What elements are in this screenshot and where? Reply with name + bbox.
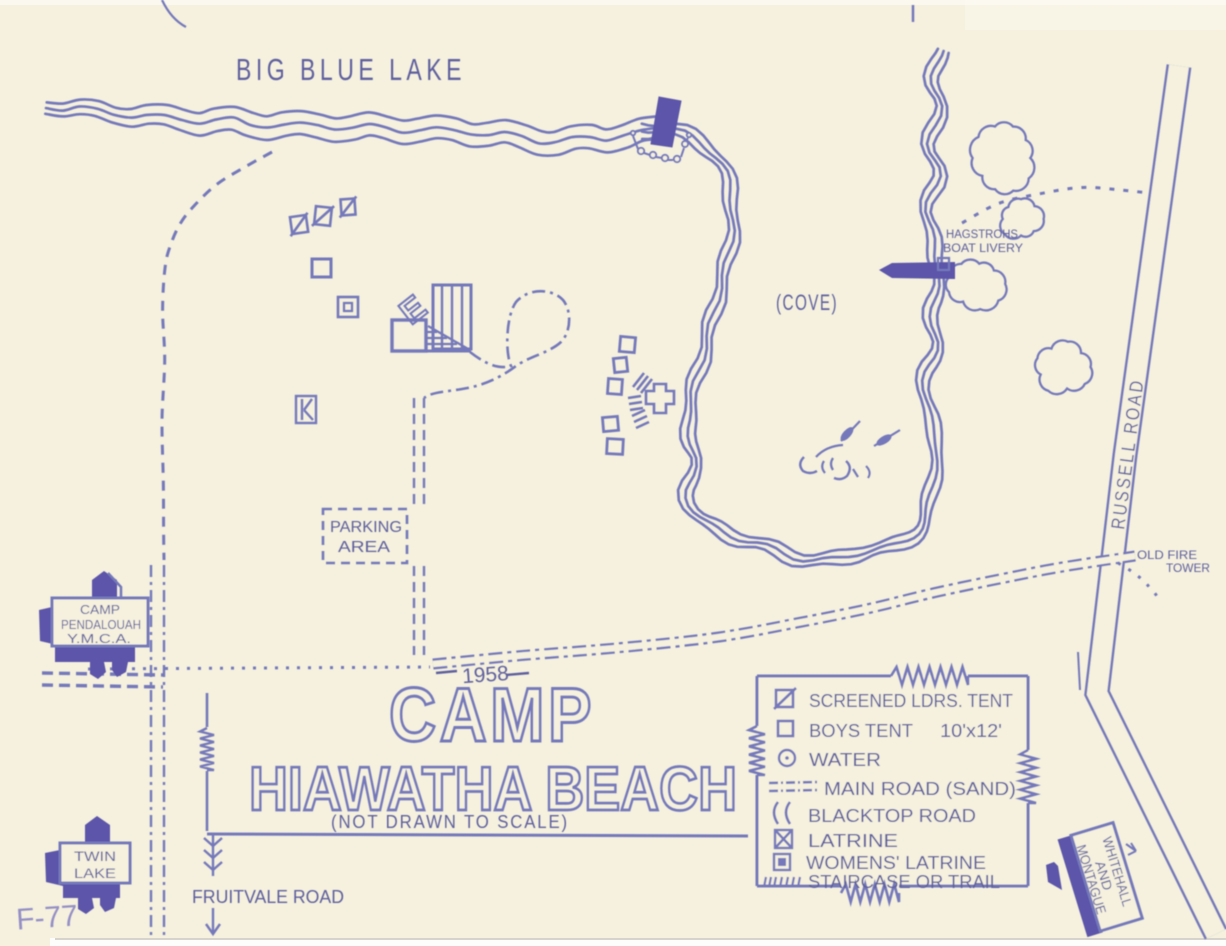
svg-text:TOWER: TOWER xyxy=(1166,561,1210,575)
svg-text:CAMP: CAMP xyxy=(80,602,120,617)
svg-text:F-77: F-77 xyxy=(15,899,79,936)
svg-text:MAIN ROAD (SAND): MAIN ROAD (SAND) xyxy=(824,779,1016,799)
svg-text:SCREENED LDRS. TENT: SCREENED LDRS. TENT xyxy=(809,691,1013,711)
svg-text:STAIRCASE OR TRAIL: STAIRCASE OR TRAIL xyxy=(808,872,1000,892)
svg-text:BLACKTOP ROAD: BLACKTOP ROAD xyxy=(808,806,976,826)
svg-text:HAGSTROHS: HAGSTROHS xyxy=(946,229,1018,241)
svg-text:10'x12': 10'x12' xyxy=(940,721,1002,741)
svg-text:PARKING: PARKING xyxy=(330,519,402,536)
svg-text:CAMP: CAMP xyxy=(389,673,595,758)
svg-text:(NOT DRAWN TO SCALE): (NOT DRAWN TO SCALE) xyxy=(331,812,569,832)
svg-text:WOMENS' LATRINE: WOMENS' LATRINE xyxy=(806,853,986,873)
svg-text:FRUITVALE ROAD: FRUITVALE ROAD xyxy=(192,887,344,907)
svg-text:LATRINE: LATRINE xyxy=(808,831,898,851)
svg-text:LAKE: LAKE xyxy=(74,865,116,881)
svg-text:BIG BLUE LAKE: BIG BLUE LAKE xyxy=(236,52,466,87)
svg-text:AREA: AREA xyxy=(338,539,390,556)
svg-text:BOAT LIVERY: BOAT LIVERY xyxy=(943,243,1023,255)
svg-text:(COVE): (COVE) xyxy=(776,290,838,315)
svg-text:TWIN: TWIN xyxy=(74,848,116,864)
svg-text:Y.M.C.A.: Y.M.C.A. xyxy=(67,631,131,646)
svg-text:PENDALOUAH: PENDALOUAH xyxy=(61,617,141,632)
svg-text:WATER: WATER xyxy=(809,750,881,770)
svg-text:OLD FIRE: OLD FIRE xyxy=(1137,548,1197,562)
svg-text:BOYS TENT: BOYS TENT xyxy=(809,721,913,741)
